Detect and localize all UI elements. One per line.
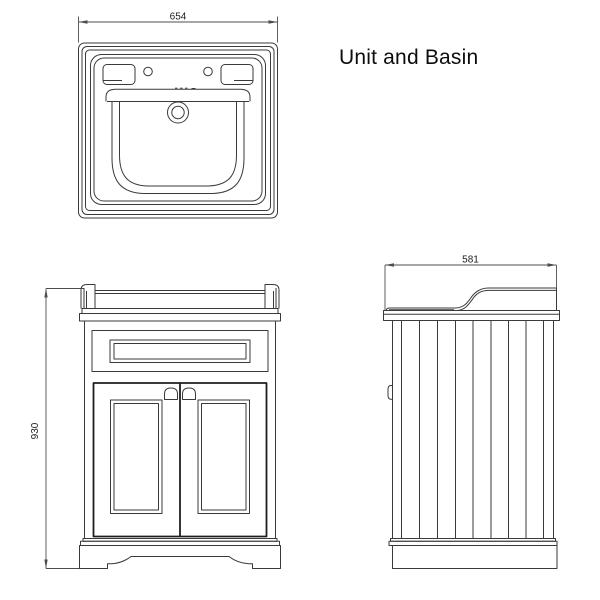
front-elevation-view: 930 bbox=[30, 285, 281, 569]
overflow-hole-outer bbox=[168, 102, 189, 123]
soap-deck-right bbox=[221, 65, 253, 85]
door-left-panel-inner bbox=[114, 404, 159, 511]
upstand-post-right bbox=[265, 285, 279, 309]
drawer-front bbox=[92, 331, 268, 372]
tap-hole-right bbox=[204, 67, 213, 76]
overflow-hole-inner bbox=[172, 106, 184, 118]
countertop bbox=[80, 309, 281, 322]
arrowhead-top-icon bbox=[44, 289, 47, 298]
drawer-front-frame bbox=[92, 331, 268, 372]
door-right-panel-outer bbox=[198, 400, 250, 514]
dimension-height: 930 bbox=[30, 289, 84, 569]
side-elevation-view: 581 bbox=[384, 255, 560, 569]
side-plinth bbox=[389, 539, 557, 569]
soap-deck-left-outline bbox=[103, 65, 135, 85]
soap-deck-left bbox=[103, 65, 135, 85]
basin-back-ledge bbox=[106, 89, 250, 101]
plinth-outline bbox=[80, 546, 281, 569]
basin-outline bbox=[79, 43, 278, 218]
arrowhead-right-icon bbox=[269, 20, 278, 24]
side-countertop-band bbox=[384, 311, 560, 321]
dimension-height-label: 930 bbox=[30, 422, 41, 439]
arrowhead-left-icon bbox=[79, 20, 88, 24]
drawer-panel-inner bbox=[114, 344, 246, 360]
side-profile-inner-line bbox=[458, 290, 557, 310]
door-knob-right bbox=[183, 388, 196, 400]
arrowhead-bottom-icon bbox=[44, 560, 47, 569]
tap-hole-left bbox=[144, 67, 153, 76]
basin-outline-inner-1 bbox=[82, 47, 274, 215]
countertop-lower-band bbox=[80, 314, 281, 322]
countertop-upper-band bbox=[82, 309, 278, 314]
side-profile-outline bbox=[387, 288, 557, 311]
plinth bbox=[80, 539, 281, 569]
door-right-panel-inner bbox=[202, 404, 247, 511]
arrowhead-right-icon bbox=[548, 263, 557, 266]
upstand-rail bbox=[81, 285, 279, 309]
dimension-depth-label: 581 bbox=[462, 255, 479, 266]
side-countertop bbox=[384, 311, 560, 321]
cabinet-doors bbox=[94, 383, 267, 537]
base-moulding-lower bbox=[81, 541, 280, 545]
side-panel-planks bbox=[393, 321, 554, 539]
drawing-svg: 654 bbox=[0, 0, 600, 600]
basin-plan-view: 654 bbox=[79, 12, 278, 219]
bowl-inner-wall bbox=[120, 102, 237, 187]
basin-rim-outer bbox=[91, 55, 266, 205]
dimension-width-label: 654 bbox=[170, 12, 187, 23]
bowl-outer-wall bbox=[112, 102, 244, 194]
side-base-moulding-lower bbox=[389, 541, 557, 545]
technical-drawing-sheet: Unit and Basin 654 bbox=[0, 0, 600, 600]
side-door-knob bbox=[388, 386, 393, 400]
side-top-profile bbox=[387, 288, 557, 311]
dimension-width: 654 bbox=[79, 12, 278, 43]
door-knob-left bbox=[165, 388, 178, 400]
door-left-panel-outer bbox=[111, 400, 163, 514]
arrowhead-left-icon bbox=[385, 263, 394, 266]
side-plinth-outline bbox=[393, 546, 558, 569]
soap-deck-right-outline bbox=[221, 65, 253, 85]
